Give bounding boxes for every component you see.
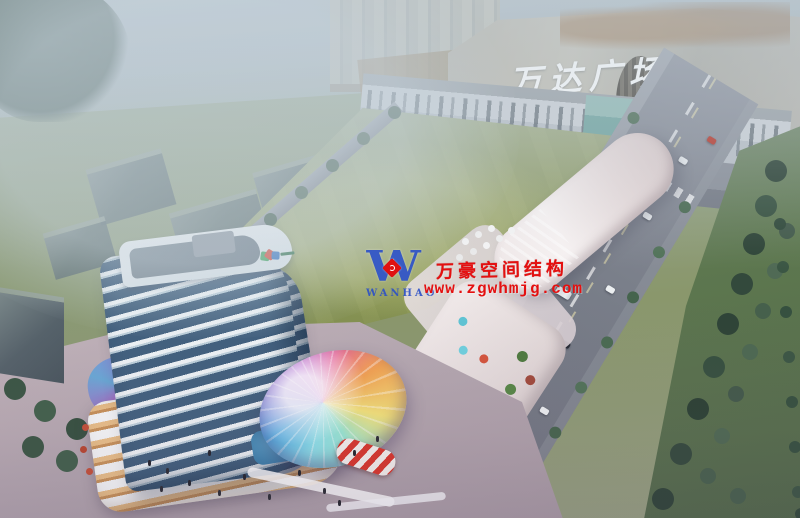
tree-cluster [4,378,26,400]
watermark-website: www.zgwhmjg.com [424,280,583,298]
corner-tree-cluster [0,0,130,122]
pedestrians [148,460,151,466]
vehicle [605,285,616,295]
wanhao-logo-mark-icon [389,265,395,271]
red-umbrellas [478,353,490,365]
wanhao-logo: W WANHAO [370,248,428,300]
terrace-red-trees [523,373,537,387]
roadside-trees [625,110,641,126]
terrace-shrubs [515,349,530,364]
vehicle [642,211,653,221]
red-umbrellas [82,424,89,431]
tower-brand-logo-icon [260,248,287,264]
tree-row [652,488,674,510]
vehicle [678,156,689,166]
white-umbrellas [462,238,469,245]
aerial-render: 万达广场 [0,0,800,518]
vehicle [539,406,550,416]
vehicle [706,136,717,146]
west-warehouse [0,286,64,383]
tree-row [700,468,716,484]
tree-row [786,396,798,408]
teal-umbrellas [457,315,469,327]
